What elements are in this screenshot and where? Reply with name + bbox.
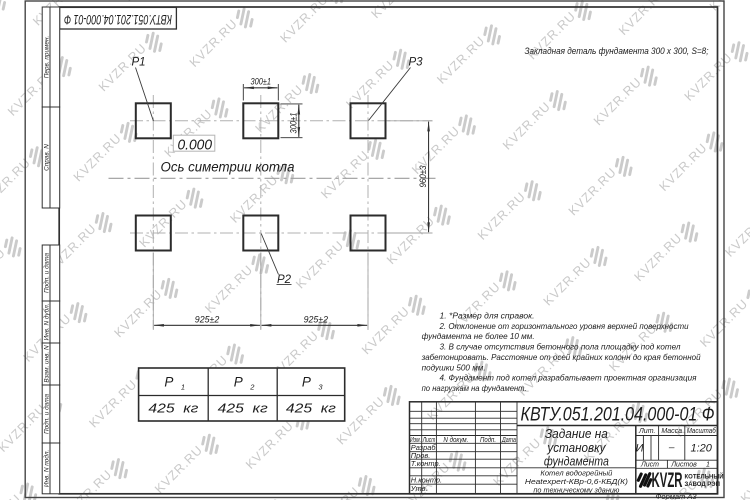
svg-text:Справ. N: Справ. N [43, 144, 50, 171]
svg-text:ЗАВОД РЭП: ЗАВОД РЭП [685, 482, 720, 488]
svg-text:Р3: Р3 [409, 57, 424, 69]
svg-text:0.000: 0.000 [178, 137, 213, 154]
svg-text:1. *Размер для справок.: 1. *Размер для справок. [440, 311, 535, 321]
svg-text:425 кг: 425 кг [286, 401, 337, 416]
svg-text:Взам. инв. N: Взам. инв. N [43, 345, 50, 383]
svg-text:И: И [636, 443, 644, 455]
svg-text:1:20: 1:20 [690, 443, 712, 455]
svg-text:425 кг: 425 кг [218, 401, 269, 416]
svg-text:Р1: Р1 [132, 57, 146, 69]
svg-text:Р: Р [234, 375, 243, 390]
svg-text:Инв. N подл.: Инв. N подл. [42, 450, 50, 487]
svg-text:960±3: 960±3 [418, 165, 428, 187]
svg-text:КОТЕЛЬНЫЙ: КОТЕЛЬНЫЙ [685, 472, 724, 480]
svg-text:Масштаб: Масштаб [687, 427, 717, 435]
svg-text:925±2: 925±2 [195, 315, 220, 325]
svg-text:Закладная деталь фундамента 3: Закладная деталь фундамента 300 х 300, S… [525, 46, 709, 57]
svg-text:Р: Р [302, 375, 311, 390]
svg-text:–: – [668, 443, 675, 454]
svg-text:1: 1 [706, 462, 710, 469]
svg-text:Подп. и дата: Подп. и дата [42, 253, 50, 293]
svg-text:Перв. примен.: Перв. примен. [43, 36, 50, 78]
svg-text:по нагрузкам на фундамент.: по нагрузкам на фундамент. [422, 383, 527, 393]
svg-text:1: 1 [181, 383, 185, 392]
svg-text:Ось симетрии котла: Ось симетрии котла [161, 160, 295, 175]
svg-text:925±2: 925±2 [304, 315, 329, 325]
svg-text:Лит.: Лит. [638, 428, 655, 435]
svg-text:Задание на: Задание на [545, 427, 608, 441]
svg-text:фундамента: фундамента [544, 454, 609, 468]
svg-text:Дата: Дата [501, 435, 516, 444]
svg-text:Подп. и дата: Подп. и дата [42, 394, 50, 434]
svg-text:300±1: 300±1 [288, 112, 298, 133]
svg-text:Масса: Масса [661, 428, 682, 435]
svg-text:Инв. N дубл.: Инв. N дубл. [42, 304, 50, 341]
svg-text:KVZR: KVZR [652, 468, 683, 492]
svg-text:Утв.: Утв. [410, 484, 428, 493]
svg-text:3. В случае отсутствия бетонн: 3. В случае отсутствия бетонного пола пл… [440, 342, 681, 352]
svg-text:фундамента не более 10 мм.: фундамента не более 10 мм. [422, 331, 535, 341]
svg-text:по техническому зданию: по техническому зданию [533, 485, 619, 494]
svg-text:Формат А3: Формат А3 [655, 492, 697, 500]
svg-text:установку: установку [546, 441, 606, 455]
svg-text:Р: Р [164, 375, 173, 390]
svg-text:425 кг: 425 кг [148, 401, 199, 416]
svg-text:4. Фундамент под котел разраб: 4. Фундамент под котел разрабатывает про… [440, 373, 697, 383]
svg-text:2. Отклонение от горизонтальн: 2. Отклонение от горизонтального уровня … [439, 321, 689, 331]
svg-text:КВТУ.051.201.04.000-01 Ф: КВТУ.051.201.04.000-01 Ф [521, 405, 715, 426]
svg-text:Подп.: Подп. [480, 435, 496, 444]
svg-text:300±1: 300±1 [251, 77, 272, 87]
svg-text:2: 2 [249, 383, 255, 392]
svg-text:подушки 500 мм.: подушки 500 мм. [422, 362, 486, 372]
svg-text:Котел водогрейный: Котел водогрейный [540, 468, 613, 477]
svg-text:N докум.: N докум. [443, 435, 468, 444]
svg-text:КВТУ.051.201.04.000-01 Ф: КВТУ.051.201.04.000-01 Ф [64, 12, 172, 27]
svg-text:Т.контр.: Т.контр. [411, 459, 441, 468]
svg-text:забетонировать. Расстояние от: забетонировать. Расстояние от осей крайн… [421, 352, 701, 362]
